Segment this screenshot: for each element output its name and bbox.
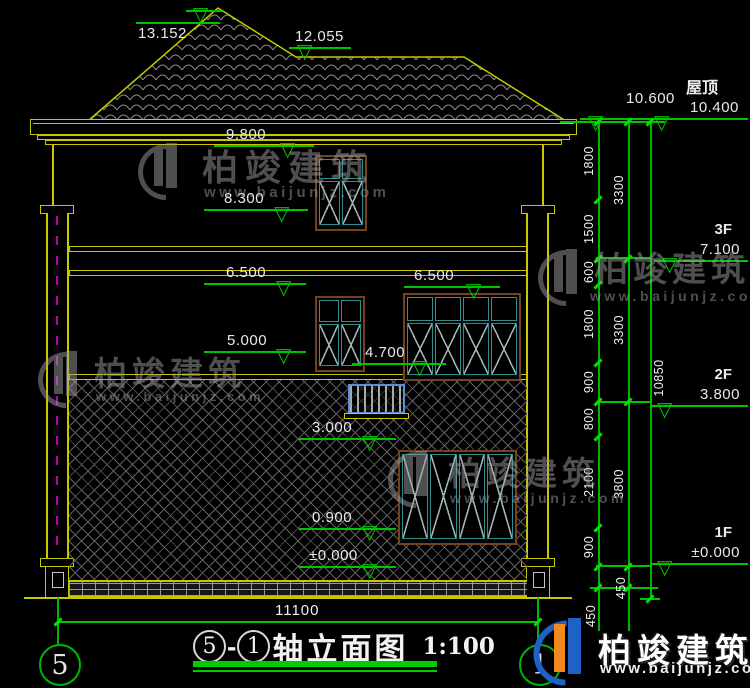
level-triangle-icon: ▽: [193, 8, 208, 23]
balcony-railing: [348, 384, 405, 414]
logo-building-bar: [554, 624, 565, 672]
window-pane: [407, 297, 433, 321]
elevation-marker-0900: 0.900 ▽: [299, 510, 396, 530]
f2-large-window-top-row: [407, 297, 517, 321]
elevation-line: [136, 22, 220, 24]
elevation-value: 13.152: [136, 26, 220, 42]
elevation-marker-roof-low: 10.400 ▽: [650, 100, 748, 120]
level-triangle-icon: ▽: [466, 283, 481, 299]
watermark-brand: 柏竣建筑: [94, 356, 246, 392]
grid-bubble-5: 5: [39, 644, 81, 686]
logo-building-bar: [566, 249, 577, 294]
logo-building-bar: [166, 143, 177, 188]
elevation-value: 0.900: [299, 510, 396, 526]
logo-building-bar: [568, 618, 581, 674]
dim-label: 3300: [612, 175, 626, 205]
roof-label: 屋顶: [686, 74, 718, 98]
elevation-marker-f1-floor: 1F ±0.000 ▽: [652, 524, 748, 565]
watermark-logo-icon: [538, 246, 590, 300]
elevation-marker-4700: 4.700 ▽: [352, 345, 446, 365]
logo-building-bar: [154, 148, 163, 186]
right-wall-edge: [542, 145, 544, 207]
watermark-brand: 柏竣建筑: [448, 456, 600, 492]
elevation-value: ±0.000: [299, 548, 396, 564]
bottom-dim-line: [58, 621, 538, 623]
level-triangle-icon: ▽: [297, 44, 312, 60]
railing-sill: [344, 413, 409, 419]
dim-label-total-width: 11100: [275, 602, 320, 619]
watermark-site: www.baijunjz.com: [450, 490, 627, 506]
dim-label: 1500: [582, 214, 596, 244]
elevation-line: [352, 363, 446, 365]
logo-building-bar: [554, 254, 563, 292]
elevation-marker-3000: 3.000 ▽: [299, 420, 396, 440]
watermark: 柏竣建筑 www.baijunjz.com: [538, 246, 750, 306]
left-pedestal-panel: [52, 572, 64, 588]
watermark-site: www.baijunjz.com: [96, 389, 264, 404]
floor-label: 1F: [652, 524, 748, 542]
level-triangle-icon: ▽: [276, 348, 291, 364]
eave-inner-line: [33, 123, 574, 124]
f2-small-window-top-row: [319, 300, 361, 322]
elevation-value: 3.000: [299, 420, 396, 436]
logo-building-bar: [54, 356, 63, 394]
dim-label: 900: [582, 536, 596, 558]
axis-circle-start: 5: [193, 630, 226, 663]
elevation-marker-ground-left: ±0.000 ▽: [299, 548, 396, 568]
elevation-value: 6.500: [404, 268, 500, 284]
window-pane-casement: [319, 324, 339, 366]
logo-building-bar: [404, 456, 413, 494]
level-triangle-icon: ▽: [657, 402, 672, 418]
level-triangle-icon: ▽: [274, 206, 289, 222]
drawing-scale: 1:100: [422, 633, 495, 660]
level-triangle-icon: ▽: [362, 435, 377, 451]
dim-label: 450: [614, 577, 628, 599]
elevation-line: [299, 566, 396, 568]
dim-label: 900: [582, 371, 596, 393]
logo-building-bar: [66, 351, 77, 396]
watermark-logo-icon: [138, 140, 194, 198]
level-triangle-icon: ▽: [412, 360, 427, 376]
level-triangle-icon: ▽: [654, 115, 669, 131]
axis-circle-end: 1: [237, 630, 270, 663]
level-triangle-icon: ▽: [657, 560, 672, 576]
elevation-marker-main-ridge: 13.152: [136, 22, 220, 44]
window-pane-casement: [491, 323, 517, 375]
dim-label: 800: [582, 408, 596, 430]
watermark: 柏竣建筑 www.baijunjz.com: [38, 348, 268, 406]
elevation-line: [204, 209, 308, 211]
watermark-site: www.baijunjz.com: [590, 288, 750, 304]
footer-logo-icon: [534, 612, 594, 684]
watermark: 柏竣建筑 www.baijunjz.com: [388, 448, 618, 510]
watermark-logo-icon: [388, 448, 444, 506]
level-triangle-icon: ▽: [362, 563, 377, 579]
elevation-drawing-canvas: ▽ 13.152 12.055 ▽ 9.800 ▽ 8.300 ▽ 6.500 …: [0, 0, 750, 688]
elevation-line: [404, 286, 500, 288]
footer-logo-site: www.baijunjz.com: [600, 660, 750, 677]
level-triangle-icon: ▽: [276, 280, 291, 296]
elevation-marker-6500-left: 6.500 ▽: [204, 265, 306, 285]
f3-floor-beam-upper: [69, 246, 527, 252]
window-pane: [319, 300, 339, 322]
elevation-line: [299, 438, 396, 440]
elevation-line: [299, 528, 396, 530]
plinth-brick-band: [69, 580, 527, 598]
watermark-brand: 柏竣建筑: [202, 150, 374, 186]
watermark-logo-icon: [38, 348, 90, 402]
dim-label-total-height: 10850: [652, 359, 666, 396]
window-pane: [491, 297, 517, 321]
dim-label: 1800: [582, 309, 596, 339]
floor-label: 2F: [652, 366, 748, 384]
watermark-site: www.baijunjz.com: [204, 184, 389, 201]
window-pane: [341, 300, 361, 322]
window-pane-casement: [463, 323, 489, 375]
floor-label: 3F: [654, 221, 748, 239]
dim-label: 3300: [612, 315, 626, 345]
watermark: 柏竣建筑 www.baijunjz.com: [138, 140, 438, 204]
grid-bubble-label: 5: [51, 650, 68, 681]
elevation-marker-f2-floor: 2F 3.800 ▽: [652, 366, 748, 407]
title-underline-thin: [193, 670, 437, 672]
window-pane: [435, 297, 461, 321]
left-wall-edge: [52, 145, 54, 207]
elevation-marker-6500-right: 6.500 ▽: [404, 268, 500, 288]
elevation-value: 4.700: [352, 345, 446, 361]
ground-line: [24, 597, 572, 599]
dim-connector-f1: [596, 565, 652, 567]
dim-label: 1800: [582, 146, 596, 176]
elevation-marker-secondary-ridge: 12.055 ▽: [289, 29, 351, 49]
watermark-brand: 柏竣建筑: [594, 252, 750, 288]
logo-building-bar: [416, 451, 427, 496]
axis-separator: -: [227, 631, 236, 663]
right-pedestal-panel: [533, 572, 545, 588]
dim-chain-storey-line: [628, 121, 630, 631]
title-underline-thick: [193, 661, 437, 667]
level-triangle-icon: ▽: [362, 525, 377, 541]
